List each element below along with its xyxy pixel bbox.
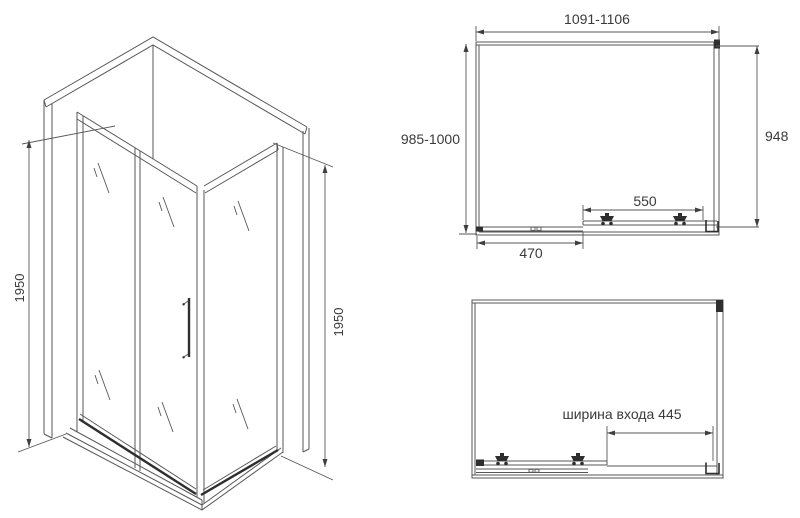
- height-left-label: 1950: [12, 274, 27, 303]
- depth-range-label: 985-1000: [401, 131, 460, 147]
- glass-reflection-marks: [94, 163, 249, 432]
- base-profiles: [63, 414, 283, 510]
- dimension-depth: 985-1000: [401, 44, 477, 234]
- corner-cap: [716, 300, 723, 312]
- technical-drawing-page: 1950 1950 1091-1106: [0, 0, 800, 518]
- dimension-width: 1091-1106: [476, 11, 719, 41]
- door-stop-bracket: [706, 220, 718, 232]
- door-handle: [182, 298, 189, 358]
- door-width-label: 550: [633, 193, 657, 209]
- dimension-entrance: [607, 426, 713, 461]
- dimension-height-left: 1950: [12, 126, 115, 447]
- left-wall-profile: [44, 100, 52, 438]
- shower-enclosure-drawing: 1950 1950 1091-1106: [0, 0, 800, 518]
- door-wall-frame: [77, 112, 204, 503]
- sliding-door-plan: [583, 213, 718, 232]
- door-end-cap: [476, 460, 484, 467]
- frame-top-inner: [46, 45, 305, 134]
- floor-line-left: [18, 434, 66, 452]
- entrance-width-label: ширина входа 445: [562, 406, 681, 422]
- frame-top-outer: [44, 37, 307, 127]
- roller: [495, 453, 509, 465]
- fixed-panel-width-label: 470: [519, 245, 543, 261]
- isometric-view: 1950 1950: [12, 37, 346, 510]
- dimension-side: 948: [716, 46, 789, 227]
- fixed-panel-plan: [476, 469, 588, 473]
- side-panel-frame: [204, 143, 283, 453]
- dimension-fixed-panel: 470: [477, 232, 583, 261]
- sliding-door-open-plan: [476, 453, 607, 466]
- dimension-door: 550: [583, 193, 703, 220]
- roller: [673, 213, 687, 225]
- height-right-label: 1950: [331, 308, 346, 337]
- roller: [600, 213, 614, 225]
- right-wall-profile: [303, 128, 309, 452]
- enclosure-outline: [472, 300, 723, 478]
- roller: [571, 453, 585, 465]
- plan-view-top: 1091-1106 985-1000 948: [401, 11, 789, 261]
- plan-view-entrance: ширина входа 445: [472, 300, 723, 478]
- fixed-panel-plan: [476, 227, 583, 232]
- width-range-label: 1091-1106: [564, 11, 630, 27]
- side-width-label: 948: [765, 128, 789, 144]
- enclosure-outline: [476, 42, 719, 235]
